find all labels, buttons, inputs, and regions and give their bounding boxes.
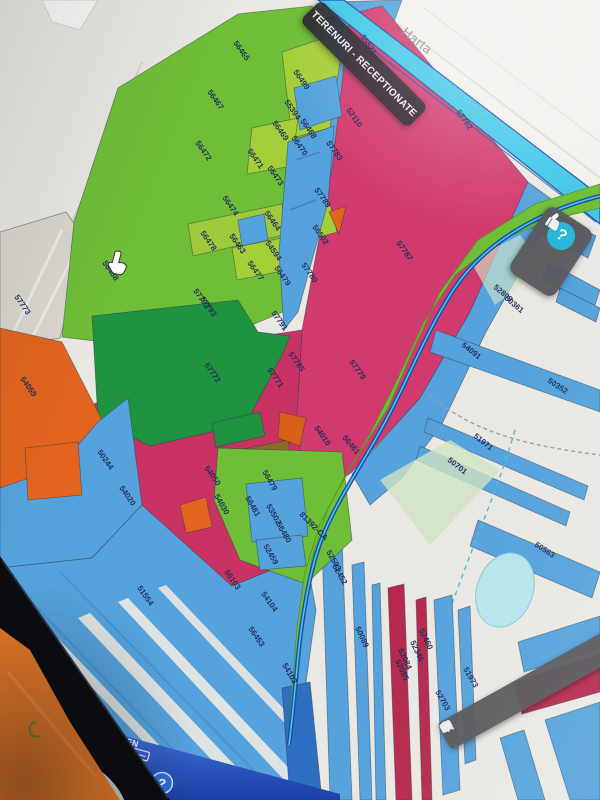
menu-icon[interactable] xyxy=(493,693,515,715)
ruler-icon[interactable] xyxy=(558,657,580,679)
settings-icon[interactable] xyxy=(580,645,600,667)
map-canvas: 5552152110577835778957780577825778757779… xyxy=(0,0,600,800)
image-icon[interactable] xyxy=(514,681,536,703)
parcel-orange-square[interactable] xyxy=(25,442,82,500)
search-icon[interactable] xyxy=(471,705,493,727)
screen-photo: 5552152110577835778957780577825778757779… xyxy=(0,0,600,800)
record-icon[interactable] xyxy=(536,669,558,691)
